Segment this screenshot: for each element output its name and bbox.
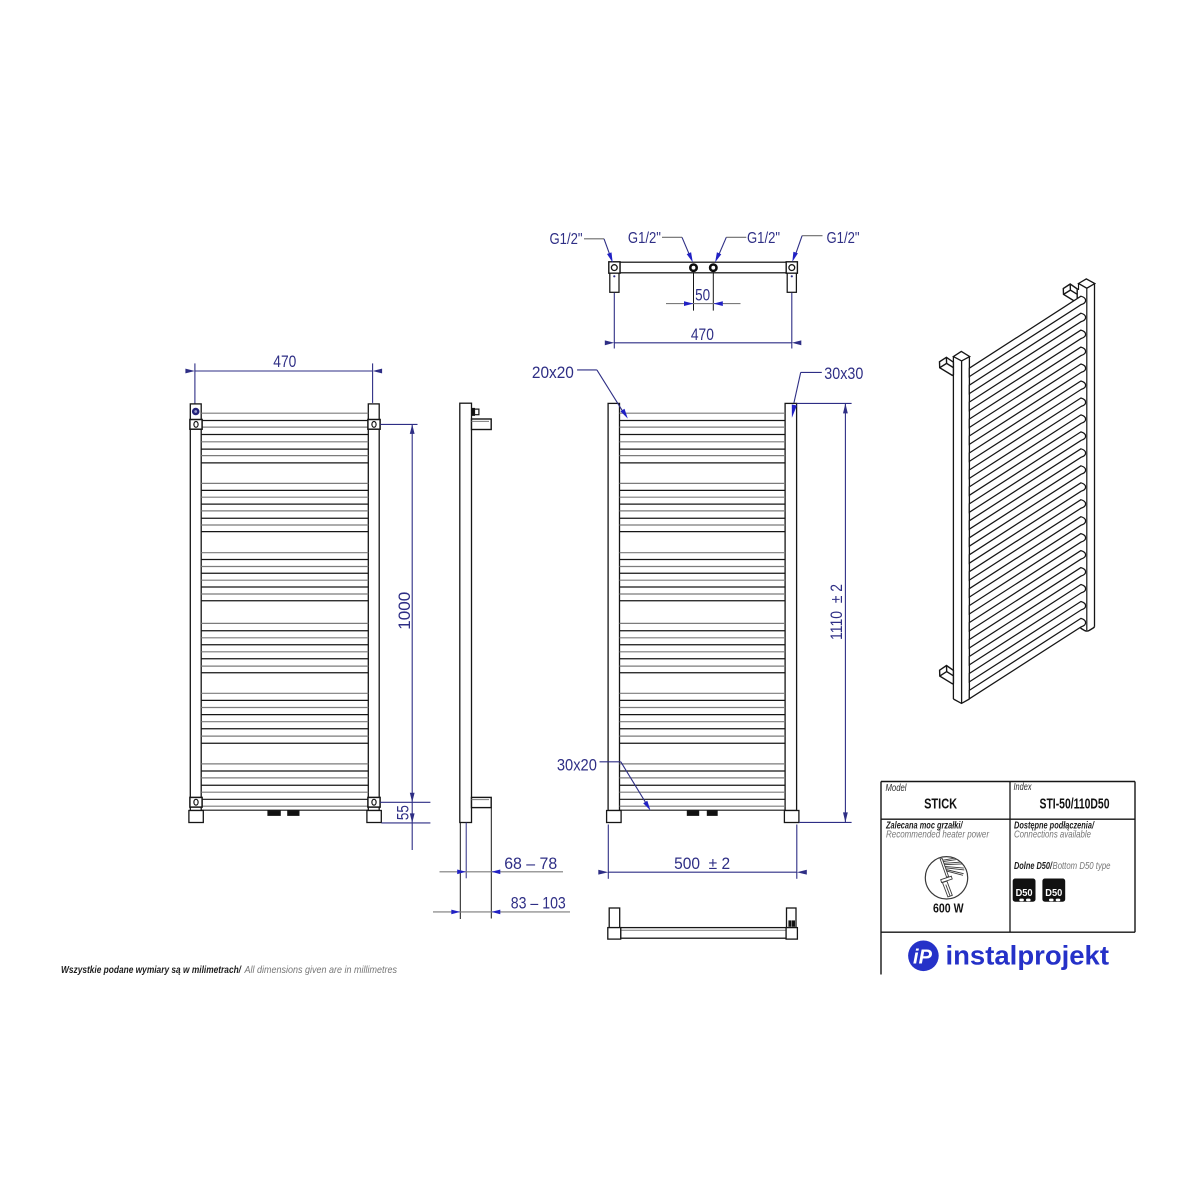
svg-text:G1/2": G1/2" <box>827 230 860 247</box>
svg-text:470: 470 <box>273 352 296 371</box>
svg-text:Model: Model <box>886 783 908 794</box>
svg-text:Connections available: Connections available <box>1014 829 1091 841</box>
svg-text:50: 50 <box>695 286 710 305</box>
svg-text:D50: D50 <box>1045 888 1062 899</box>
svg-text:55: 55 <box>393 805 412 820</box>
svg-text:1110 ± 2: 1110 ± 2 <box>827 584 846 640</box>
svg-text:Bottom D50 type: Bottom D50 type <box>1053 860 1111 872</box>
svg-text:83 – 103: 83 – 103 <box>511 894 566 913</box>
svg-text:STI-50/110D50: STI-50/110D50 <box>1040 796 1110 813</box>
svg-text:Recommended heater power: Recommended heater power <box>886 829 989 841</box>
svg-text:G1/2": G1/2" <box>628 230 661 247</box>
svg-text:Wszystkie podane wymiary są w: Wszystkie podane wymiary są w milimetrac… <box>61 964 242 976</box>
svg-text:500 ± 2: 500 ± 2 <box>674 854 730 873</box>
svg-text:G1/2": G1/2" <box>550 231 583 248</box>
svg-text:68 – 78: 68 – 78 <box>504 854 557 873</box>
svg-text:30x20: 30x20 <box>557 756 597 775</box>
svg-text:Index: Index <box>1014 782 1033 793</box>
svg-text:30x30: 30x30 <box>824 364 863 383</box>
svg-text:iP: iP <box>913 947 933 969</box>
svg-text:STICK: STICK <box>924 796 957 813</box>
svg-text:470: 470 <box>691 325 714 344</box>
svg-text:20x20: 20x20 <box>532 363 574 382</box>
svg-text:600 W: 600 W <box>933 901 964 916</box>
svg-text:D50: D50 <box>1016 888 1033 899</box>
svg-text:instalprojekt: instalprojekt <box>946 940 1110 970</box>
svg-text:All dimensions given are in mi: All dimensions given are in millimetres <box>244 964 398 976</box>
svg-text:G1/2": G1/2" <box>747 230 780 247</box>
svg-text:Dolne D50/: Dolne D50/ <box>1014 860 1053 872</box>
svg-text:1000: 1000 <box>395 592 414 630</box>
